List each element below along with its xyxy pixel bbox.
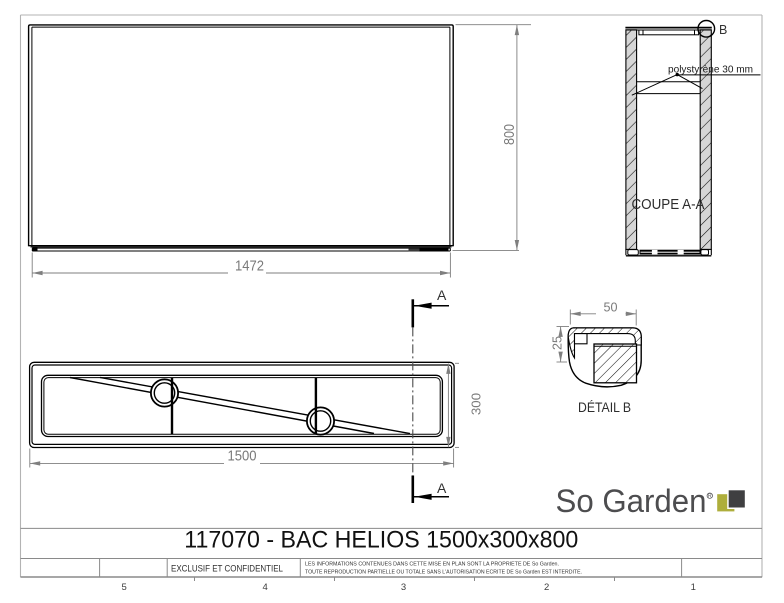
svg-text:25: 25	[550, 336, 565, 350]
svg-text:800: 800	[501, 124, 518, 145]
svg-text:TOUTE REPRODUCTION PARTIELLE O: TOUTE REPRODUCTION PARTIELLE OU TOTALE S…	[305, 569, 582, 575]
svg-text:1: 1	[691, 582, 696, 593]
svg-text:2: 2	[544, 582, 549, 593]
svg-text:3: 3	[401, 582, 406, 593]
svg-text:50: 50	[604, 299, 618, 314]
svg-text:B: B	[719, 23, 727, 37]
svg-text:A: A	[437, 287, 447, 303]
svg-text:EXCLUSIF ET CONFIDENTIEL: EXCLUSIF ET CONFIDENTIEL	[171, 563, 283, 573]
svg-text:R: R	[708, 494, 712, 500]
svg-text:4: 4	[262, 582, 267, 593]
svg-text:5: 5	[122, 582, 127, 593]
svg-text:So Garden: So Garden	[556, 483, 707, 519]
svg-text:polystyrène 30 mm: polystyrène 30 mm	[668, 63, 753, 75]
svg-text:DÉTAIL B: DÉTAIL B	[578, 399, 631, 415]
svg-text:1500: 1500	[228, 448, 257, 465]
svg-text:A: A	[437, 480, 447, 496]
svg-text:1472: 1472	[235, 257, 264, 274]
svg-text:300: 300	[469, 393, 484, 415]
svg-text:LES INFORMATIONS CONTENUES DAN: LES INFORMATIONS CONTENUES DANS CETTE MI…	[305, 562, 559, 568]
svg-text:117070 - BAC HELIOS 1500x300x8: 117070 - BAC HELIOS 1500x300x800	[184, 527, 578, 554]
svg-text:COUPE A-A: COUPE A-A	[632, 196, 705, 213]
